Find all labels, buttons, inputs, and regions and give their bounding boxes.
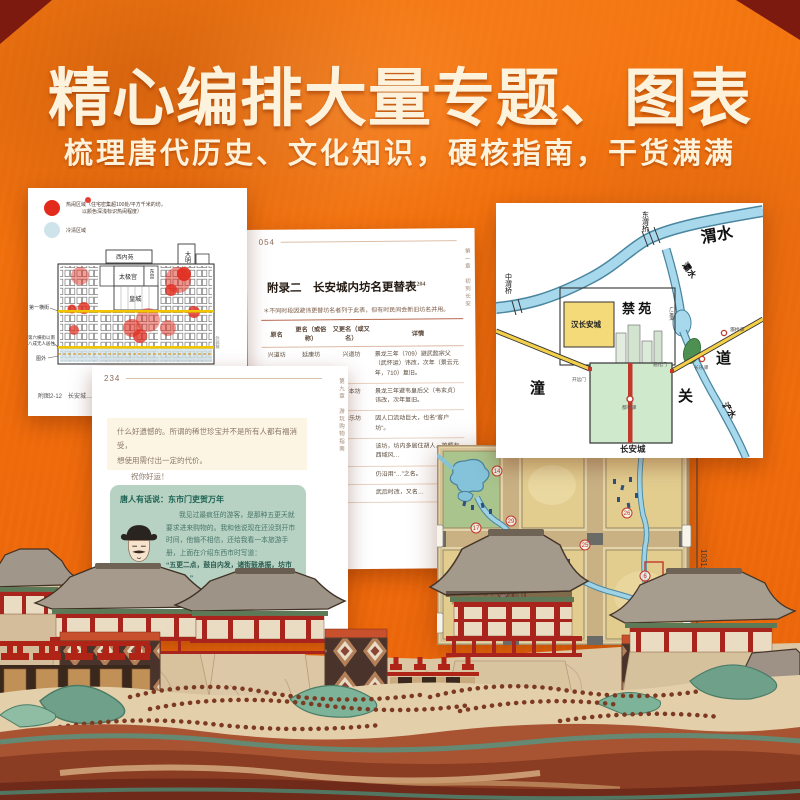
mural-cityscape <box>0 525 800 800</box>
region-map-card: 汉长安城 禁 苑 开远门 通化门 <box>496 203 763 458</box>
changle-station-label: 长乐驿 <box>694 364 709 371</box>
col-details: 详情 <box>372 319 463 347</box>
guan-label: 关 <box>678 387 693 405</box>
xineiyuan-label: 西内苑 <box>116 253 134 261</box>
cell: 景龙三年避韦皇后父（韦玄贞）讳改，次年复旧。 <box>373 383 464 411</box>
appendix-title-text: 附录二 长安城内坊名更替表 <box>267 282 417 295</box>
tong-label: 潼 <box>530 379 545 397</box>
intro-line2: 想使用需付出一定的代价。 <box>117 454 297 468</box>
guangyuntan-label: 广运潭 <box>669 306 675 322</box>
chapter-margin-text: 第九章 游玩购物指南 <box>337 378 345 508</box>
tonghua-gate-label: 通化门 <box>653 361 667 368</box>
south-note-line1: 第六横街以南 <box>28 334 55 341</box>
header-rule <box>126 378 322 379</box>
dialog-title: 唐人有话说：东市门吏贺万年 <box>120 494 296 505</box>
duting-station-label: 都亭驿 <box>622 404 637 411</box>
figure-caption: 附图2-12 长安城… <box>38 392 92 400</box>
kaiyuan-gate-label: 开远门 <box>572 376 586 383</box>
sixth-street-line <box>58 346 214 349</box>
first-street-label: 第一横街 <box>29 304 49 311</box>
imperial-city-label: 皇城 <box>129 295 141 303</box>
col-renamed-again: 又更名（或又名） <box>330 319 373 346</box>
promo-background: 精心编排大量专题、图表 梳理唐代历史、文化知识，硬核指南，干货满满 热闹区域（住… <box>0 0 800 800</box>
col-renamed: 更名（或俗称） <box>292 320 331 347</box>
corner-decoration-top-left <box>0 0 52 44</box>
page-title: 精心编排大量专题、图表 <box>0 48 800 139</box>
appendix-title: 附录二 长安城内坊名更替表204 <box>267 278 426 295</box>
corner-decoration-top-right <box>736 0 800 40</box>
dao-label: 道 <box>716 349 731 367</box>
bashui-label: 灞水 <box>680 260 698 280</box>
chapter-margin-text: 第一章 初到长安 <box>463 248 472 308</box>
col-original: 原名 <box>261 320 292 347</box>
cold-area-legend-dot <box>44 222 60 238</box>
page-number: 054 <box>259 238 275 247</box>
region-map-figure: 汉长安城 禁 苑 开远门 通化门 <box>496 203 763 458</box>
appendix-title-superscript: 204 <box>416 282 425 288</box>
south-note-line2: 八成无人居住 <box>28 340 55 347</box>
kaiyuan-gate <box>588 367 592 371</box>
cell: 景龙三年（709）避武懿宗父（武怀运）讳改，次年（景云元年，710）复旧。 <box>373 346 464 384</box>
marker-label: 26 <box>624 511 631 517</box>
table-header-row: 原名 更名（或俗称） 又更名（或又名） 详情 <box>261 319 463 348</box>
changan-city-label: 长安城 <box>620 444 646 454</box>
first-street-line <box>58 310 214 313</box>
cold-legend-label: 冷清区域 <box>66 227 86 234</box>
baqiao-station-label: 灞桥驿 <box>730 326 745 333</box>
dongweiqiao-label: 东渭桥 <box>642 210 650 233</box>
zhongweiqiao-label: 中渭桥 <box>505 272 513 295</box>
good-luck-line: 祝你好运！ <box>117 470 297 484</box>
east-palace-label: 东宫 <box>149 268 154 280</box>
page-subtitle: 梳理唐代历史、文化知识，硬核指南，干货满满 <box>0 130 800 172</box>
cell: 因人口流动巨大，也名“客户坊”。 <box>373 410 464 438</box>
taiji-palace-label: 太极宫 <box>119 273 137 281</box>
intro-line1: 什么好遗憾的。所谓的稀世珍宝并不是所有人都有福消受， <box>117 425 297 454</box>
jinyuan-label: 禁 苑 <box>622 301 651 316</box>
appendix-note: ＊不同时段因避讳更替坊名者列于此表，但有时民间会新旧坊名并用。 <box>263 304 461 315</box>
right-margin-note: 外郭城 <box>215 335 221 350</box>
pond-small <box>458 491 473 501</box>
zhuque-avenue <box>628 363 633 443</box>
hot-area-legend-dot <box>44 200 60 216</box>
page-number: 234 <box>104 374 120 383</box>
cold-region <box>60 348 212 362</box>
outside-label: 图外 <box>36 355 46 362</box>
tonghua-gate <box>670 369 674 373</box>
marker-label: 14 <box>494 469 501 475</box>
header-rule <box>281 240 457 243</box>
han-changan-label: 汉长安城 <box>571 319 601 329</box>
intro-highlight-box: 什么好遗憾的。所谓的稀世珍宝并不是所有人都有福消受， 想使用需付出一定的代价。 … <box>107 418 307 470</box>
hot-legend-line1: 热闹区域（住宅密集超100处/平方千米的坊， <box>66 201 166 208</box>
hot-legend-line2: 以颜色深浅标识热闹程度） <box>82 208 142 215</box>
